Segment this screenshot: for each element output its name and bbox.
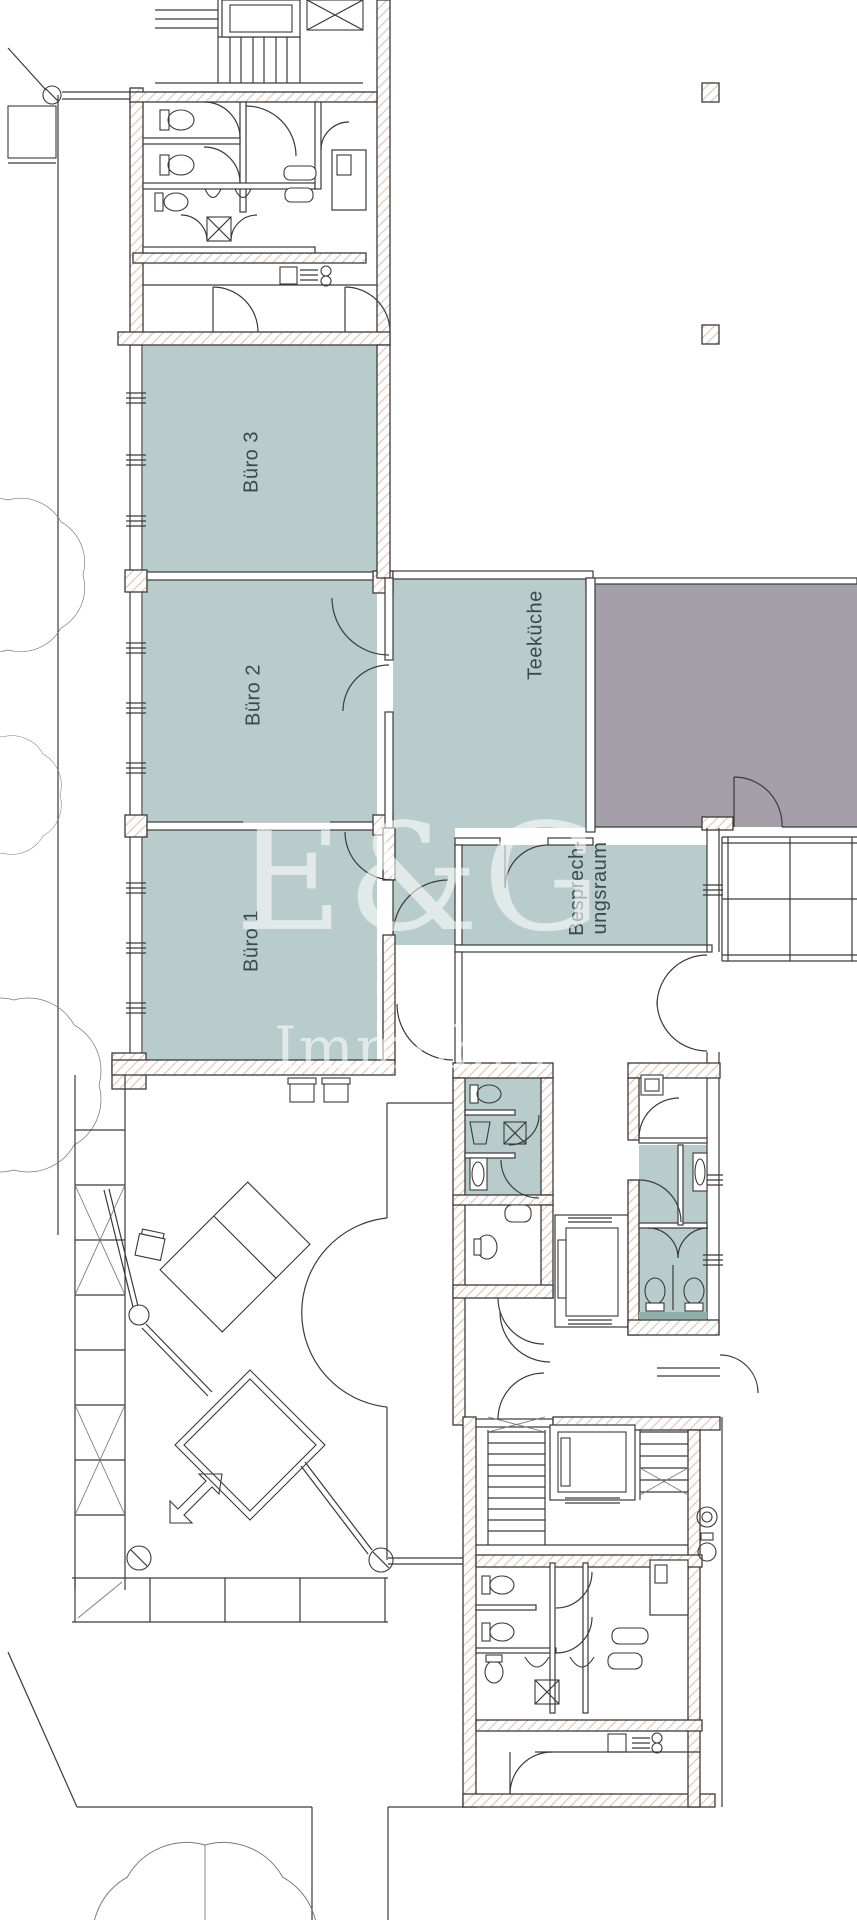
hob-icon xyxy=(321,266,331,276)
urinal-icon xyxy=(205,189,221,198)
chair-icon xyxy=(290,1082,314,1102)
watermark-logo: E&G xyxy=(235,792,605,964)
toilet-icon xyxy=(485,1661,503,1683)
upper-elevator xyxy=(222,0,363,37)
elevator-middle xyxy=(555,1215,628,1327)
boiler-icon xyxy=(641,1075,663,1095)
freestanding-columns xyxy=(702,83,719,344)
floor-plan: Büro 3 Büro 2 Büro 1 Teeküche Besprech-u… xyxy=(0,0,857,1920)
reception-desk xyxy=(160,1182,310,1332)
hob-icon xyxy=(652,1733,662,1743)
room-label-buero-2: Büro 2 xyxy=(243,664,266,726)
lower-kitchen xyxy=(510,1733,700,1794)
double-door xyxy=(657,1001,707,1051)
lower-core xyxy=(463,1373,722,1807)
sink-icon xyxy=(608,1653,642,1669)
toilet-icon xyxy=(155,193,163,211)
entrance-arrow-icon xyxy=(170,1474,222,1523)
toilet-icon xyxy=(482,1576,490,1594)
wc-right xyxy=(628,1063,758,1393)
lobby xyxy=(72,1004,463,1622)
urinal-icon xyxy=(570,1657,594,1667)
shower-cabin xyxy=(650,1560,688,1615)
sink-icon xyxy=(284,166,316,180)
upper-wc-fixtures xyxy=(155,102,366,241)
upper-kitchen xyxy=(143,266,390,332)
room-label-buero-3: Büro 3 xyxy=(241,431,264,493)
kitchen-sink-icon xyxy=(280,267,297,284)
sink-icon xyxy=(698,1543,716,1561)
urinal-icon xyxy=(525,1657,549,1667)
bottom-railing xyxy=(72,1558,463,1622)
terrace-grid xyxy=(722,837,857,961)
sink-icon xyxy=(505,1205,531,1222)
left-railing xyxy=(75,1075,125,1590)
post-icon xyxy=(129,1305,149,1325)
entrance-vestibule xyxy=(175,1370,325,1520)
room-label-teekueche: Teeküche xyxy=(525,590,548,680)
kitchen-sink-icon xyxy=(608,1734,626,1752)
neighbor-unit xyxy=(595,583,857,827)
sink-icon xyxy=(285,188,313,202)
toilet-icon xyxy=(482,1623,490,1641)
watermark-text: Immobilien xyxy=(274,1014,626,1082)
desk-chair xyxy=(135,1229,166,1261)
double-door xyxy=(657,955,707,1005)
curved-wall xyxy=(302,1218,387,1407)
lower-elevator xyxy=(550,1425,635,1503)
sink-icon xyxy=(612,1628,648,1644)
chair-icon xyxy=(324,1082,348,1102)
